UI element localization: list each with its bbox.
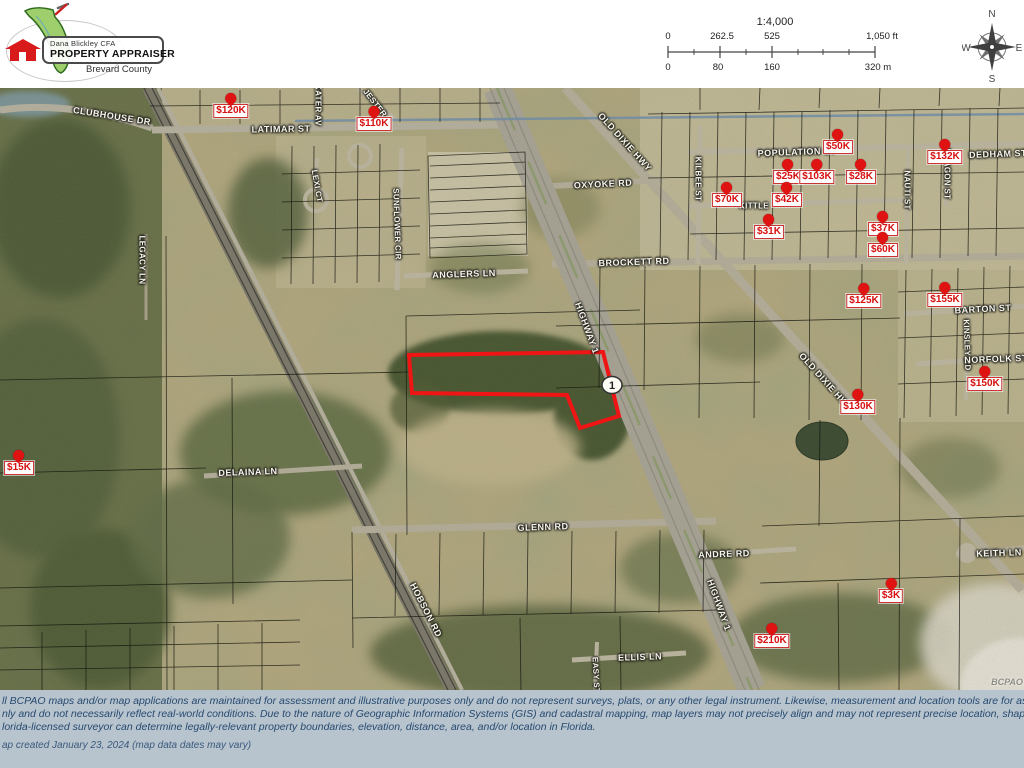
street-label-legacy-ln: LEGACY LN [138,236,147,285]
street-label-glenn-rd: GLENN RD [517,521,568,533]
price-marker-42k[interactable]: $42K [772,182,802,207]
price-marker-130k[interactable]: $130K [840,389,875,414]
price-marker-155k[interactable]: $155K [927,282,962,307]
street-label-kater-av: KATER AV [314,88,323,126]
price-label: $70K [712,193,742,207]
street-label-andre-rd: ANDRE RD [698,548,750,560]
price-label: $155K [927,293,962,307]
disclaimer-footer: ll BCPAO maps and/or map applications ar… [0,690,1024,768]
compass-n: N [988,9,995,20]
appraiser-title: PROPERTY APPRAISER [50,48,156,60]
compass-s: S [989,74,996,84]
scale-ft-2: 525 [764,31,780,42]
price-marker-210k[interactable]: $210K [754,623,789,648]
price-marker-28k[interactable]: $28K [846,159,876,184]
scale-m-0: 0 [665,62,670,73]
disclaimer-line-3: lorida-licensed surveyor can determine l… [2,721,1024,734]
price-marker-110k[interactable]: $110K [357,106,392,131]
price-marker-31k[interactable]: $31K [754,214,784,239]
price-marker-15k[interactable]: $15K [4,450,34,475]
price-marker-70k[interactable]: $70K [712,182,742,207]
bcpao-watermark: BCPAO [991,677,1023,687]
bcpao-logo: Dana Blickley CFA PROPERTY APPRAISER Bre… [0,2,180,86]
street-label-nauti-st: NAUTI ST [903,170,912,209]
street-label-kittle: KITTLE [739,202,769,211]
street-label-kilbee-st: KILBEE ST [694,157,703,201]
scale-meter-labels: 0 80 160 320 m [650,62,900,74]
scale-ft-1: 262.5 [710,31,734,42]
us1-route-shield: 1 [602,377,622,394]
scale-m-3: 320 m [865,62,891,73]
price-marker-103k[interactable]: $103K [799,159,834,184]
scale-ticks [650,45,900,59]
street-label-easy-st: EASY ST [591,657,602,690]
house-icon [5,39,41,61]
scale-bar: 1:4,000 0 262.5 525 1,050 ft 0 [650,16,900,76]
street-label-keith-ln: KEITH LN [976,547,1022,559]
price-marker-150k[interactable]: $150K [967,366,1002,391]
scale-ft-3: 1,050 ft [866,31,898,42]
price-marker-60k[interactable]: $60K [868,232,898,257]
price-label: $120K [213,104,248,118]
price-label: $125K [846,294,881,308]
price-label: $103K [799,170,834,184]
price-label: $132K [927,150,962,164]
aerial-parcel-map[interactable]: 1 CLUBHOUSE DR LATIMAR ST KATER AV JESTE… [0,88,1024,690]
price-label: $60K [868,243,898,257]
price-label: $15K [4,461,34,475]
street-label-norfolk-st: NORFOLK ST [964,353,1024,365]
price-label: $50K [823,140,853,154]
price-label: $150K [967,377,1002,391]
scale-ft-0: 0 [665,31,670,42]
price-label: $28K [846,170,876,184]
scale-feet-labels: 0 262.5 525 1,050 ft [650,31,900,43]
price-label: $210K [754,634,789,648]
compass-w: W [962,43,971,54]
logo-text-box: Dana Blickley CFA PROPERTY APPRAISER [42,36,164,64]
county-label: Brevard County [86,64,152,75]
bcpao-map-page: Dana Blickley CFA PROPERTY APPRAISER Bre… [0,0,1024,768]
price-marker-3k[interactable]: $3K [879,578,903,603]
price-label: $42K [772,193,802,207]
scale-m-1: 80 [713,62,724,73]
disclaimer-line-1: ll BCPAO maps and/or map applications ar… [2,695,1024,708]
compass-e: E [1016,43,1023,54]
street-label-latimar-st: LATIMAR ST [252,123,311,134]
disclaimer-line-2: nly and do not necessarily reflect real-… [2,708,1024,721]
price-marker-132k[interactable]: $132K [927,139,962,164]
map-created-date: ap created January 23, 2024 (map data da… [2,740,1024,751]
price-marker-125k[interactable]: $125K [846,283,881,308]
price-marker-120k[interactable]: $120K [213,93,248,118]
price-marker-50k[interactable]: $50K [823,129,853,154]
compass-rose-icon: N S W E [962,6,1024,84]
route-shield-number: 1 [609,380,615,392]
scale-ratio: 1:4,000 [650,16,900,28]
appraiser-name: Dana Blickley CFA [50,39,156,48]
map-header: Dana Blickley CFA PROPERTY APPRAISER Bre… [0,0,1024,88]
street-label-ellis-ln: ELLIS LN [618,651,662,663]
street-label-dedham-st: DEDHAM ST [969,148,1024,160]
scale-m-2: 160 [764,62,780,73]
street-label-delaina-ln: DELAINA LN [218,466,277,478]
price-label: $130K [840,400,875,414]
price-label: $31K [754,225,784,239]
